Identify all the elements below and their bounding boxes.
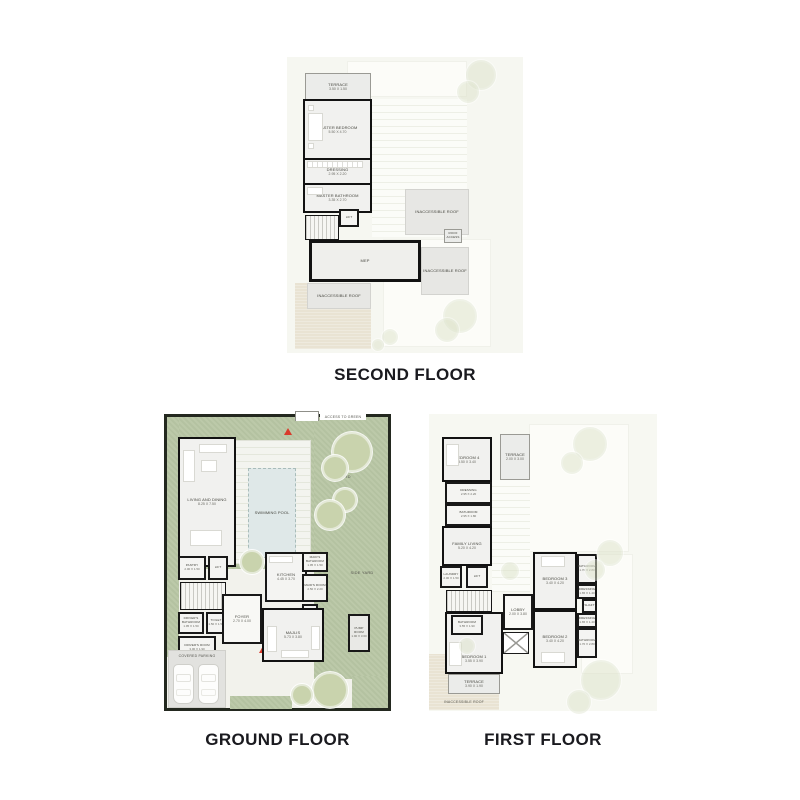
room-terrace: TERRACE 3.50 X 1.50 [305, 73, 371, 100]
room-laundry: LAUNDRY 2.00 X 1.50 [440, 566, 462, 588]
dining-table [190, 530, 222, 546]
room-lobby: LOBBY 2.00 X 3.80 [503, 594, 533, 630]
car [198, 664, 219, 704]
inaccessible-roof-label: INACCESSIBLE ROOF [431, 700, 497, 704]
roof-access: ROOF ACCESS [444, 229, 462, 243]
room-dims: 5.50 X 4.70 [329, 130, 347, 135]
room-dims: 8.25 X 7.50 [198, 502, 216, 507]
room-foyer: FOYER 2.70 X 4.00 [222, 594, 262, 644]
car [173, 664, 194, 704]
stairs [180, 582, 226, 610]
bed [446, 444, 459, 466]
second-floor-title: SECOND FLOOR [287, 365, 523, 385]
first-floor-plan: INACCESSIBLE ROOF BEDROOM 4 3.50 X 3.40 … [429, 414, 657, 711]
coffee-table [201, 460, 217, 472]
tree-icon [240, 550, 264, 574]
room-dims: 5.73 X 3.80 [284, 635, 302, 640]
room-bathroom: BATHROOM 2.95 X 1.80 [445, 504, 492, 526]
room-bathroom-r2: BATHROOM 1.70 X 2.80 [577, 628, 597, 658]
room-dims: 1.95 X 1.50 [307, 564, 322, 568]
tree-icon [382, 329, 398, 345]
first-floor-title: FIRST FLOOR [429, 730, 657, 750]
stairs [446, 590, 492, 612]
room-name: LIFT [474, 575, 481, 579]
room-dims: 2.00 X 3.00 [506, 457, 524, 462]
room-dressing-r2: DRESSING 1.65 X 1.40 [577, 613, 597, 628]
room-bathroom1: BATHROOM 3.55 X 1.90 [451, 615, 483, 635]
room-maids-bathroom: MAID'S BATHROOM 1.95 X 1.50 [302, 552, 328, 572]
floor-plans-sheet: INACCESSIBLE ROOF INACCESSIBLE ROOF INAC… [0, 0, 800, 800]
room-lift: LIFT [339, 209, 359, 227]
room-name: SHAFT [584, 604, 594, 608]
room-lift: LIFT [466, 566, 488, 588]
room-dims: 2.70 X 4.00 [233, 619, 251, 624]
entry-marker-icon [284, 428, 292, 435]
side-table [308, 105, 314, 111]
tree-icon [312, 672, 348, 708]
room-dims: 1.65 X 1.40 [579, 592, 594, 596]
room-dims: 2.95 X 1.80 [461, 515, 476, 519]
bed [541, 556, 565, 567]
room-dims: 4.45 X 3.70 [277, 577, 295, 582]
kitchen-counter [269, 556, 293, 563]
room-dims: 3.35 X 2.70 [329, 198, 347, 203]
room-dims: 1.65 X 1.40 [579, 621, 594, 625]
tree-icon [372, 339, 384, 351]
second-floor-plan: INACCESSIBLE ROOF INACCESSIBLE ROOF INAC… [287, 57, 523, 353]
tree-icon [435, 318, 459, 342]
room-dims: 3.40 X 4.20 [546, 581, 564, 586]
roof-label: INACCESSIBLE ROOF [415, 209, 459, 214]
room-dims: 3.50 X 3.40 [458, 460, 476, 465]
room-dressing-r1: DRESSING 1.65 X 1.40 [577, 584, 597, 599]
tree-icon [561, 452, 583, 474]
double-height-void [503, 632, 529, 654]
covered-parking-label: COVERED PARKING [172, 654, 222, 658]
room-dims: 2.95 X 2.20 [329, 172, 347, 177]
room-lift: LIFT [208, 556, 228, 580]
room-dressing: DRESSING 2.95 X 2.20 [445, 482, 492, 504]
room-dims: 3.55 X 3.90 [465, 659, 483, 664]
room-dims: 3.50 X 1.50 [329, 87, 347, 92]
room-name: ROOF ACCESS [445, 232, 461, 240]
room-dims: 1.90 X 3.60 [351, 635, 366, 639]
ground-floor-title: GROUND FLOOR [164, 730, 391, 750]
side-yard-label: SIDE YARD [342, 570, 382, 575]
room-dims: 2.50 X 2.20 [307, 588, 322, 592]
access-gate [295, 411, 319, 421]
sofa [183, 450, 195, 482]
tree-icon [315, 500, 345, 530]
room-dims: 2.95 X 2.20 [461, 493, 476, 497]
roof-label: INACCESSIBLE ROOF [423, 268, 467, 273]
roof-label: INACCESSIBLE ROOF [317, 293, 361, 298]
sofa [281, 650, 309, 658]
sofa [311, 626, 320, 650]
room-dims: 2.00 X 1.50 [443, 577, 458, 581]
room-dims: 2.00 X 1.50 [184, 568, 199, 572]
room-drivers-bathroom: DRIVER'S BATHROOM 1.95 X 1.50 [178, 612, 204, 634]
stairs [305, 215, 339, 240]
tree-icon [501, 562, 519, 580]
room-dims: 1.95 X 1.50 [183, 625, 198, 629]
wardrobe [307, 161, 363, 168]
room-dims: 2.00 X 3.80 [509, 612, 527, 617]
room-mep: MEP [309, 240, 421, 282]
room-dims: 5.20 X 4.20 [458, 546, 476, 551]
room-dims: 1.70 X 2.80 [579, 643, 594, 647]
tree-icon [585, 560, 605, 580]
room-name: MEP [361, 258, 370, 263]
tree-icon [459, 638, 475, 654]
room-dims: 3.40 X 4.20 [546, 639, 564, 644]
sofa [199, 444, 227, 453]
room-name: LIFT [346, 216, 353, 220]
lawn-patch [352, 676, 388, 708]
ground-floor-plan: SWIMMING POOL BACKYARD SIDE YARD ACCESS … [164, 414, 391, 711]
inaccessible-roof: INACCESSIBLE ROOF [307, 283, 371, 309]
tree-icon [567, 690, 591, 714]
room-maids-room: MAID'S ROOM 2.50 X 2.20 [302, 574, 328, 602]
swimming-pool: SWIMMING POOL [248, 468, 296, 558]
lawn-patch [230, 696, 292, 709]
tree-icon [291, 684, 313, 706]
room-shaft: SHAFT [582, 599, 597, 613]
side-table [308, 143, 314, 149]
room-terrace-bottom: TERRACE 3.90 X 1.90 [448, 674, 500, 694]
tree-icon [322, 455, 348, 481]
bathtub [307, 187, 323, 195]
room-pantry: PANTRY 2.00 X 1.50 [178, 556, 206, 580]
room-name: LIFT [215, 566, 222, 570]
room-family-living: FAMILY LIVING 5.20 X 4.20 [442, 526, 492, 566]
room-pump-room: PUMP ROOM 1.90 X 3.60 [348, 614, 370, 652]
room-terrace-top: TERRACE 2.00 X 3.00 [500, 434, 530, 480]
pool-label: SWIMMING POOL [255, 510, 290, 515]
tree-icon [457, 81, 479, 103]
bed [541, 652, 565, 663]
bed [308, 113, 323, 141]
room-dims: 3.55 X 1.90 [459, 625, 474, 629]
room-dims: 3.90 X 1.90 [465, 684, 483, 689]
inaccessible-roof: INACCESSIBLE ROOF [421, 247, 469, 295]
sofa [267, 626, 277, 652]
access-to-green-label: ACCESS TO GREEN [320, 414, 366, 420]
